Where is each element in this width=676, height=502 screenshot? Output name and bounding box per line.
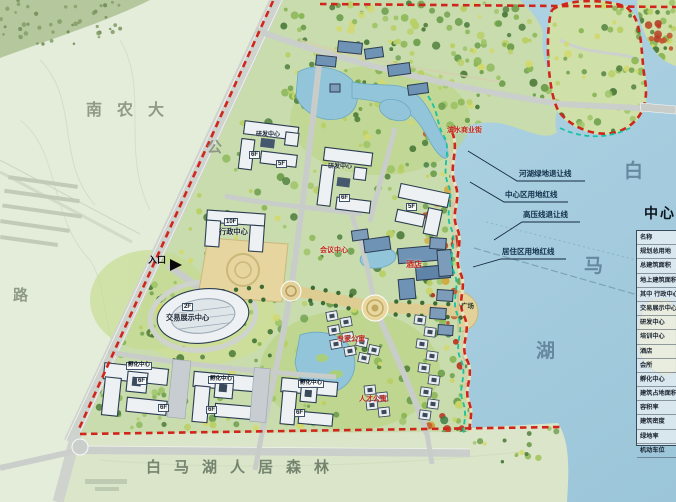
lake-name-char-2: 马: [584, 257, 603, 277]
lake-name-char-1: 白: [624, 162, 643, 182]
info-table: 名称规划总用地总建筑面积地上建筑面积其中 行政中心交易展示中心研发中心培训中心酒…: [636, 230, 676, 446]
expert-apartments-label: 专家公寓: [337, 336, 365, 343]
lake-name-char-3: 湖: [536, 342, 555, 362]
setback-label-river-green: 河湖绿地退让线: [519, 170, 572, 178]
exhibition-center-label: 交易展示中心: [166, 314, 209, 322]
admin-floors-tag: 10F: [224, 218, 238, 226]
info-table-row: 其中 行政中心: [637, 288, 676, 302]
forest-band-label: 白马湖人居森林: [146, 460, 342, 476]
rnd-center-label-1: 研发中心: [256, 132, 280, 138]
info-table-row: 研发中心: [637, 316, 676, 330]
info-table-title: 中心区: [644, 206, 676, 221]
setback-label-center-redline: 中心区用地红线: [505, 191, 558, 199]
floor-tag: 5F: [276, 160, 287, 168]
floor-tag: 6F: [206, 406, 217, 414]
campus-label: 南农大: [86, 103, 179, 120]
floor-tag: 5F: [406, 203, 417, 211]
floor-tag: 6F: [136, 377, 147, 385]
setback-label-residential-redline: 居住区用地红线: [502, 248, 555, 256]
info-table-row: 酒店: [637, 345, 676, 359]
info-table-row: 交易展示中心: [637, 302, 676, 316]
road-name-char-2: 路: [13, 288, 28, 304]
exhibition-floors-tag: 2F: [182, 303, 193, 311]
floor-tag: 6F: [249, 151, 260, 159]
faint-stamp: [85, 479, 127, 484]
rnd-center-label-2: 研发中心: [328, 164, 352, 170]
admin-center-label: 行政中心: [219, 228, 248, 236]
faint-stamp: [95, 487, 119, 491]
info-table-row: 孵化中心: [637, 373, 676, 387]
info-table-row: 名称: [637, 231, 676, 245]
incubator-label-2: 孵化中心: [208, 376, 234, 384]
info-table-row: 规划总用地: [637, 245, 676, 259]
master-plan-screenshot: 南农大 公 路 白 马 湖 白马湖人居森林 河湖绿地退让线 中心区用地红线 高压…: [0, 0, 676, 502]
floor-tag: 6F: [294, 409, 305, 417]
entrance-label: 入口: [148, 256, 166, 265]
setback-label-high-voltage: 高压线退让线: [523, 211, 568, 219]
info-table-row: 容积率: [637, 401, 676, 415]
info-table-row: 总建筑面积: [637, 259, 676, 273]
info-table-row: 建筑密度: [637, 415, 676, 429]
talent-apartments-label: 人才公寓: [359, 396, 387, 403]
info-table-row: 建筑占地面积: [637, 387, 676, 401]
info-table-row: 绿地率: [637, 430, 676, 444]
incubator-label-1: 孵化中心: [126, 362, 152, 370]
info-table-row: 地上建筑面积: [637, 274, 676, 288]
info-table-row: 培训中心: [637, 330, 676, 344]
info-table-row: 会所: [637, 359, 676, 373]
commercial-street-label: 滨水商业街: [447, 127, 482, 134]
info-table-row: 机动车位: [637, 444, 676, 458]
plaza-label: 广场: [461, 304, 474, 311]
floor-tag: 6F: [339, 194, 350, 202]
incubator-label-3: 孵化中心: [298, 380, 324, 388]
conference-label: 会议中心: [320, 247, 348, 254]
hotel-label: 酒店: [406, 261, 422, 269]
road-name-char-1: 公: [207, 140, 222, 156]
floor-tag: 6F: [158, 404, 169, 412]
